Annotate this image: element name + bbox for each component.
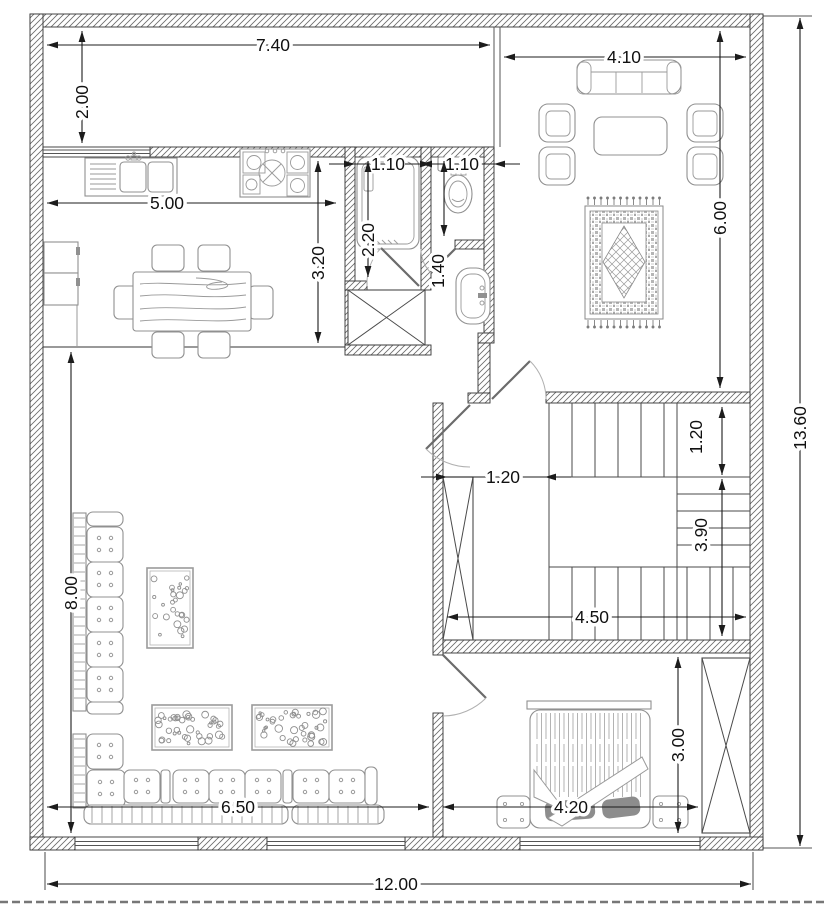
dimension-living-depth: 6.00 — [710, 31, 730, 388]
exterior-wall-bottom — [30, 837, 75, 850]
exterior-wall-right — [750, 14, 763, 850]
dimension-label-wc-depth: 1.40 — [428, 254, 448, 288]
dining-table — [114, 245, 273, 358]
dotted-rug — [152, 705, 232, 750]
bed — [527, 701, 651, 828]
kitchen-sink — [85, 152, 177, 196]
living-room-rug — [585, 197, 663, 328]
dimension-label-porch-width: 7.40 — [256, 35, 290, 55]
dimension-label-porch-depth: 2.00 — [72, 85, 92, 119]
floor-plan-canvas: 12.0013.607.402.004.106.005.003.201.102.… — [0, 0, 828, 906]
stove — [240, 149, 310, 197]
dining-chair — [152, 245, 184, 271]
window — [520, 837, 700, 850]
dining-chair — [198, 245, 230, 271]
door-living-room — [492, 361, 546, 399]
dimension-label-majlis-width: 6.50 — [221, 797, 255, 817]
dimension-porch-width: 7.40 — [47, 35, 490, 55]
dimension-porch-depth: 2.00 — [72, 31, 92, 143]
dotted-rug — [147, 568, 193, 648]
armchair — [687, 147, 723, 185]
exterior-wall-bottom — [405, 837, 520, 850]
nightstand — [653, 796, 688, 828]
exterior-wall-top — [30, 14, 763, 27]
dimension-label-stair-flight-width: 1.20 — [686, 420, 706, 454]
wall-stair-north — [546, 392, 750, 403]
dimension-label-bedroom-depth: 3.00 — [668, 728, 688, 762]
wall-stair-south — [443, 640, 750, 653]
door-bedroom — [443, 655, 486, 716]
wall-jog — [478, 333, 494, 343]
refrigerator — [44, 242, 80, 305]
dimension-label-wc-width: 1.10 — [445, 154, 479, 174]
dotted-rugs — [147, 568, 332, 750]
nightstand — [497, 796, 530, 828]
exterior-wall-bottom — [198, 837, 267, 850]
armchair — [539, 104, 575, 142]
dimension-stair-run: 3.90 — [691, 479, 725, 636]
coffee-table — [594, 117, 667, 155]
dimension-label-living-width: 4.10 — [607, 47, 641, 67]
exterior-wall-left — [30, 14, 43, 850]
dimension-kitchen-depth: 3.20 — [308, 161, 328, 343]
majlis-floor-sofa — [73, 512, 384, 824]
sofa-set — [539, 60, 723, 185]
wall-jog — [468, 393, 490, 403]
window — [267, 837, 405, 850]
dimension-label-kitchen-width: 5.00 — [150, 193, 184, 213]
dimension-label-stair-run: 3.90 — [691, 518, 711, 552]
dining-chair — [249, 286, 273, 319]
dimension-label-bedroom-width: 4.20 — [554, 797, 588, 817]
dimension-stair-hall-width: 4.50 — [447, 607, 746, 627]
window — [75, 837, 198, 850]
staircase — [549, 403, 750, 640]
dining-chair — [198, 332, 230, 358]
armchair — [687, 104, 723, 142]
dimension-label-bathroom-width: 1.10 — [371, 154, 405, 174]
dimension-label-overall-height: 13.60 — [790, 406, 810, 450]
dining-chair — [152, 332, 184, 358]
dimension-label-corridor-width: 1.20 — [486, 467, 520, 487]
wall-jog — [478, 343, 490, 393]
dimension-overall-width: 12.00 — [47, 874, 751, 894]
wall-bath-south-stub — [345, 281, 367, 290]
floor-plan-sheet: 12.0013.607.402.004.106.005.003.201.102.… — [0, 0, 828, 906]
dimension-label-living-depth: 6.00 — [710, 201, 730, 235]
service-shaft — [348, 290, 425, 345]
dimension-label-kitchen-depth: 3.20 — [308, 246, 328, 280]
majlis-seats — [87, 527, 125, 807]
wardrobe — [702, 658, 750, 833]
wall-porch-kitchen — [150, 147, 494, 157]
washbasin — [456, 268, 490, 324]
dimension-label-stair-hall-width: 4.50 — [575, 607, 609, 627]
wall-majlis-east — [433, 713, 443, 837]
exterior-wall-bottom — [700, 837, 763, 850]
dimension-overall-height: 13.60 — [790, 18, 810, 846]
glass-partition — [494, 27, 500, 147]
dimension-stair-flight-width: 1.20 — [686, 407, 725, 475]
dotted-rug — [252, 705, 332, 750]
armchair — [539, 147, 575, 185]
dimension-label-bathroom-depth: 2.20 — [358, 223, 378, 257]
wall-shaft-south — [345, 345, 431, 355]
wall-majlis-east — [433, 477, 443, 655]
dimension-label-majlis-depth: 8.00 — [61, 576, 81, 610]
dimension-living-width: 4.10 — [504, 47, 746, 67]
dimension-label-overall-width: 12.00 — [374, 874, 418, 894]
